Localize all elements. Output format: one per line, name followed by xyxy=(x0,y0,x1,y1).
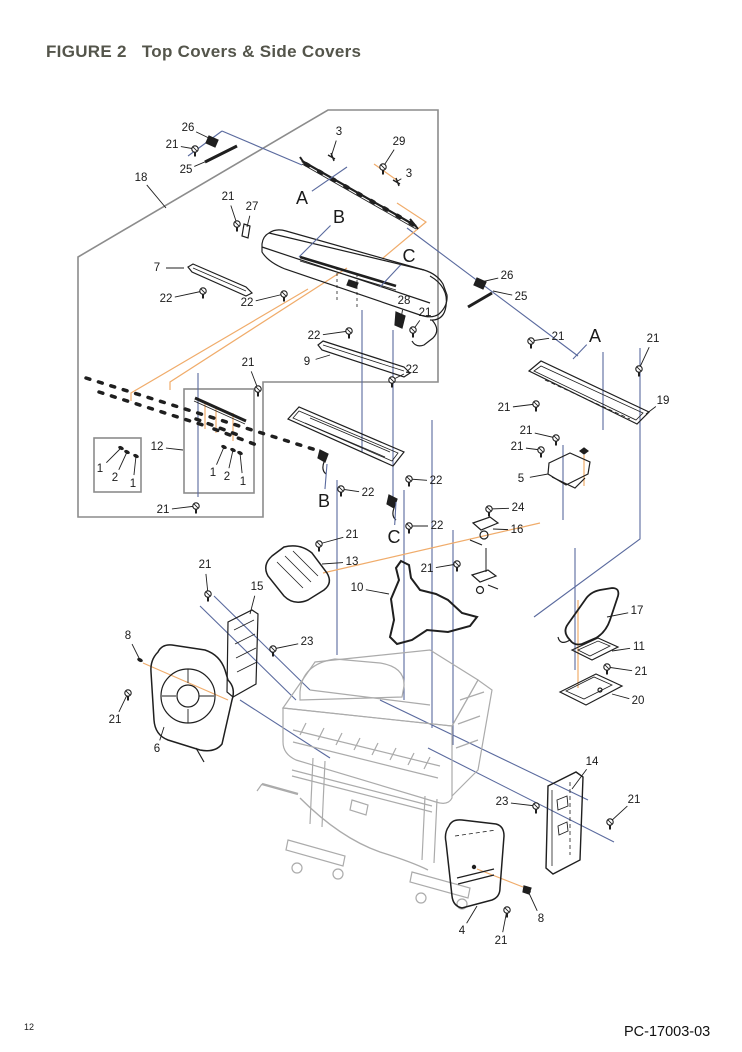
drawing-path xyxy=(300,659,404,700)
drawing-path xyxy=(305,418,390,457)
callout-label: 13 xyxy=(346,556,359,568)
drawing-path xyxy=(234,620,257,672)
callout-label: C xyxy=(403,246,416,266)
lower-panel xyxy=(288,407,404,520)
printer-body xyxy=(257,650,492,909)
drawing-path xyxy=(300,723,430,769)
drawing-path xyxy=(306,164,414,225)
callout-label: 25 xyxy=(515,291,528,303)
callout-label: 21 xyxy=(419,307,432,319)
drawing-path xyxy=(310,690,430,705)
callout-label: B xyxy=(333,207,345,227)
drawing-path xyxy=(457,869,494,884)
drawing-path xyxy=(318,341,410,377)
drawing-path xyxy=(286,840,345,866)
plate-11 xyxy=(572,638,618,660)
callout-label: 1 xyxy=(97,463,103,475)
callout-label: 3 xyxy=(406,168,412,180)
hinge-16 xyxy=(470,517,498,594)
callout-leader-line xyxy=(273,644,298,649)
drawing-path xyxy=(277,551,318,588)
callout-leader-line xyxy=(106,448,121,463)
callout-label: 19 xyxy=(657,395,670,407)
callout-leader-line xyxy=(256,294,284,301)
pin-icon xyxy=(137,657,144,663)
drawing-path xyxy=(214,429,262,447)
drawing-path xyxy=(323,345,404,371)
callout-label: 27 xyxy=(246,201,259,213)
drawing-path xyxy=(456,692,484,748)
callout-label: 23 xyxy=(301,636,314,648)
callout-label: 10 xyxy=(351,582,364,594)
callout-label: 21 xyxy=(628,794,641,806)
callout-label: 23 xyxy=(496,796,509,808)
callout-label: 16 xyxy=(511,524,524,536)
footer-page-number: 12 xyxy=(24,1022,34,1032)
callout-label: 2 xyxy=(224,471,230,483)
callout-leader-line xyxy=(331,141,336,157)
callout-label: 21 xyxy=(199,559,212,571)
drawing-path xyxy=(214,596,310,690)
callout-label: 14 xyxy=(586,756,599,768)
callout-label: 21 xyxy=(222,191,235,203)
drawing-path xyxy=(488,585,498,589)
callout-label: 21 xyxy=(421,563,434,575)
callout-leader-line xyxy=(316,355,330,359)
callout-label: 22 xyxy=(160,293,173,305)
callout-leader-line xyxy=(325,464,327,489)
callout-leader-line xyxy=(366,590,389,594)
callout-leader-line xyxy=(194,158,214,166)
hook-plate-10 xyxy=(390,561,477,644)
drawing-path xyxy=(552,477,585,488)
drawing-path xyxy=(292,770,432,812)
callout-label: C xyxy=(388,527,401,547)
drawing-path xyxy=(302,164,416,229)
callout-label: 22 xyxy=(241,297,254,309)
callout-leader-line xyxy=(319,537,343,544)
callout-leader-line xyxy=(175,291,203,297)
drawing-path xyxy=(269,233,424,270)
drawing-path xyxy=(416,893,426,903)
callout-label: A xyxy=(296,188,308,208)
drawing-path xyxy=(472,865,475,868)
drawing-path xyxy=(283,650,478,726)
callout-label: 26 xyxy=(182,122,195,134)
callout-label: 1 xyxy=(210,467,216,479)
drawing-path xyxy=(170,268,347,390)
drawing-path xyxy=(534,348,640,617)
pin-icon xyxy=(124,449,131,455)
callout-label: 29 xyxy=(393,136,406,148)
callout-leader-line xyxy=(217,447,224,465)
callout-layer: 262125183293A2127B72222C2625282122922211… xyxy=(97,122,670,947)
pin-icon xyxy=(221,444,228,450)
callout-label: 21 xyxy=(495,935,508,947)
drawing-path xyxy=(412,320,437,346)
callout-leader-line xyxy=(481,278,498,282)
footer-doc-number: PC-17003-03 xyxy=(624,1024,710,1040)
callout-label: 21 xyxy=(109,714,122,726)
callout-label: 2 xyxy=(112,472,118,484)
callout-label: 21 xyxy=(552,331,565,343)
drawing-path xyxy=(529,361,649,424)
strip-7 xyxy=(188,264,252,296)
callout-leader-line xyxy=(323,331,349,335)
callout-leader-line xyxy=(528,891,537,911)
callout-label: 15 xyxy=(251,581,264,593)
callout-leader-line xyxy=(147,185,166,208)
drawing-path xyxy=(455,830,496,836)
callout-label: 22 xyxy=(308,330,321,342)
drawing-path xyxy=(177,685,199,707)
callout-label: 21 xyxy=(511,441,524,453)
callout-leader-line xyxy=(607,667,632,671)
callout-leader-line xyxy=(612,694,629,699)
drawing-path xyxy=(474,278,486,289)
callout-label: 5 xyxy=(518,473,524,485)
bracket-28 xyxy=(395,312,405,328)
drawing-path xyxy=(534,366,643,420)
callout-leader-line xyxy=(493,529,508,530)
drawing-path xyxy=(200,606,296,700)
callout-leader-line xyxy=(467,906,477,923)
callout-leader-line xyxy=(511,803,536,806)
callout-label: 18 xyxy=(135,172,148,184)
callout-label: B xyxy=(318,491,330,511)
callout-leader-line xyxy=(134,456,136,475)
callout-label: 7 xyxy=(154,262,160,274)
callout-label: 22 xyxy=(431,520,444,532)
top-cover xyxy=(262,230,447,346)
callout-label: 1 xyxy=(130,478,136,490)
callout-leader-line xyxy=(322,563,343,564)
exploded-diagram: 262125183293A2127B72222C2625282122922211… xyxy=(0,0,742,1052)
callout-label: 25 xyxy=(180,164,193,176)
drawing-path xyxy=(580,448,588,454)
callout-label: 21 xyxy=(498,402,511,414)
panel-19 xyxy=(529,361,649,424)
callout-label: 4 xyxy=(459,925,466,937)
rail-part xyxy=(300,153,418,229)
drawing-path xyxy=(333,869,343,879)
drawing-path xyxy=(350,800,368,815)
callout-label: 21 xyxy=(166,139,179,151)
callout-label: 17 xyxy=(631,605,644,617)
drawing-path xyxy=(266,546,330,602)
callout-label: 20 xyxy=(632,695,645,707)
callout-label: A xyxy=(589,326,601,346)
callout-label: 12 xyxy=(151,441,164,453)
drawing-path xyxy=(162,669,214,723)
drawing-path xyxy=(323,462,396,520)
callout-label: 26 xyxy=(501,270,514,282)
callout-leader-line xyxy=(196,132,213,140)
drawing-path xyxy=(292,863,302,873)
drawing-path xyxy=(347,280,358,288)
manual-page: FIGURE 2 Top Covers & Side Covers xyxy=(0,0,742,1052)
drawing-path xyxy=(472,570,496,582)
callout-label: 21 xyxy=(157,504,170,516)
clamp-rod-left xyxy=(205,136,237,162)
drawing-path xyxy=(380,700,588,800)
callout-label: 24 xyxy=(512,502,525,514)
exploded-parts xyxy=(86,136,649,908)
cover-6 xyxy=(151,645,233,762)
drawing-path xyxy=(195,398,246,421)
callout-label: 22 xyxy=(406,364,419,376)
callout-label: 11 xyxy=(633,641,645,653)
callout-label: 8 xyxy=(125,630,131,642)
callout-leader-line xyxy=(607,613,628,617)
callout-label: 21 xyxy=(647,333,660,345)
clamp-rod-right xyxy=(468,278,492,307)
callout-label: 3 xyxy=(336,126,342,138)
drawing-path xyxy=(468,293,492,307)
callout-leader-line xyxy=(646,406,656,414)
drawing-path xyxy=(193,268,246,291)
drawing-path xyxy=(196,419,238,435)
drawing-path xyxy=(477,587,484,594)
drawing-path xyxy=(470,540,482,545)
callout-label: 8 xyxy=(538,913,544,925)
drawing-path xyxy=(257,784,262,791)
drawing-path xyxy=(288,407,404,466)
drawing-path xyxy=(293,411,398,461)
drawing-path xyxy=(151,645,233,751)
drawing-path xyxy=(598,688,602,692)
drawing-path xyxy=(410,872,470,898)
drawing-path xyxy=(262,784,298,794)
callout-label: 21 xyxy=(346,529,359,541)
callout-label: 22 xyxy=(362,487,375,499)
callout-label: 21 xyxy=(242,357,255,369)
drawing-path xyxy=(572,638,618,660)
callout-leader-line xyxy=(229,450,233,468)
callout-leader-line xyxy=(119,452,127,470)
callout-label: 6 xyxy=(154,743,160,755)
callout-label: 21 xyxy=(635,666,648,678)
callout-label: 22 xyxy=(430,475,443,487)
drawing-path xyxy=(473,517,498,530)
callout-leader-line xyxy=(240,453,242,473)
callout-label: 28 xyxy=(398,295,411,307)
callout-leader-line xyxy=(573,345,587,359)
drawing-path xyxy=(131,289,308,401)
drawing-path xyxy=(318,450,328,462)
callout-leader-line xyxy=(132,644,140,660)
rod-12 xyxy=(194,398,246,424)
drawing-path xyxy=(566,677,612,699)
callout-leader-line xyxy=(530,474,548,477)
bracket-20 xyxy=(560,674,622,705)
drawing-path xyxy=(422,796,437,863)
callout-label: 1 xyxy=(240,476,246,488)
strip-9 xyxy=(318,341,410,377)
drawing-path xyxy=(293,730,440,778)
callout-label: 21 xyxy=(520,425,533,437)
duct-13 xyxy=(266,546,330,602)
callout-leader-line xyxy=(166,448,183,450)
bracket-27 xyxy=(242,224,250,238)
callout-label: 9 xyxy=(304,356,310,368)
